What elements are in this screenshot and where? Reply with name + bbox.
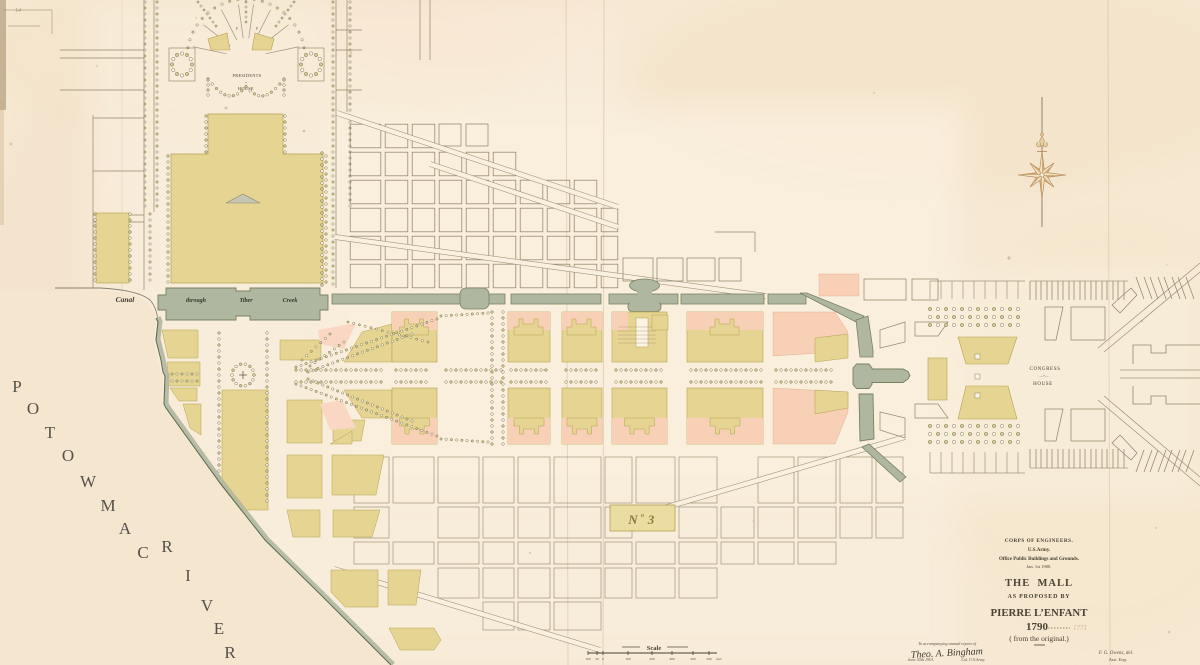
- svg-text:Jan. 1st 1900.: Jan. 1st 1900.: [1027, 564, 1052, 569]
- svg-text:100: 100: [585, 657, 591, 661]
- svg-text:U.S.Army.: U.S.Army.: [1028, 548, 1051, 553]
- svg-text:R: R: [224, 643, 236, 662]
- svg-text:E: E: [214, 619, 224, 638]
- svg-text:PRESIDENTS: PRESIDENTS: [233, 73, 262, 78]
- svg-text:500: 500: [706, 657, 712, 661]
- svg-text:THE MALL: THE MALL: [1005, 578, 1073, 589]
- svg-text:0: 0: [602, 657, 604, 661]
- svg-text:V: V: [201, 596, 214, 615]
- svg-text:Col. U.S.Army: Col. U.S.Army: [961, 657, 985, 662]
- svg-text:300: 300: [669, 657, 675, 661]
- svg-text:W: W: [80, 472, 97, 491]
- svg-text:through: through: [186, 298, 207, 304]
- svg-text:14: 14: [15, 7, 21, 14]
- svg-text:Creek: Creek: [283, 298, 298, 304]
- svg-text:O: O: [27, 399, 39, 418]
- svg-text:—+—: —+—: [1038, 374, 1049, 378]
- svg-text:200: 200: [649, 657, 655, 661]
- svg-text:feet: feet: [716, 657, 721, 661]
- svg-text:N: N: [627, 512, 638, 527]
- svg-text:CONGRESS: CONGRESS: [1030, 367, 1061, 372]
- svg-text:O: O: [62, 446, 74, 465]
- svg-text:C: C: [137, 543, 148, 562]
- svg-text:( from the original.): ( from the original.): [1009, 634, 1069, 643]
- svg-text:50: 50: [595, 657, 599, 661]
- svg-text:AS PROPOSED BY: AS PROPOSED BY: [1008, 594, 1071, 600]
- svg-text:June 30th 1901.: June 30th 1901.: [908, 657, 935, 662]
- svg-text:Canal: Canal: [116, 295, 136, 304]
- svg-text:I: I: [185, 566, 191, 585]
- svg-text:Asst. Eng.: Asst. Eng.: [1108, 657, 1127, 662]
- svg-text:400: 400: [690, 657, 696, 661]
- svg-text:100: 100: [625, 657, 631, 661]
- svg-text:P: P: [12, 377, 21, 396]
- svg-text:HOUSE: HOUSE: [1033, 382, 1053, 387]
- svg-text:T: T: [45, 423, 56, 442]
- svg-text:CORPS OF ENGINEERS.: CORPS OF ENGINEERS.: [1005, 538, 1074, 544]
- svg-text:Office Public Buildings and Gr: Office Public Buildings and Grounds.: [999, 557, 1080, 562]
- svg-text:1790: 1790: [1026, 621, 1049, 633]
- svg-text:F. G. Owens, del.: F. G. Owens, del.: [1098, 651, 1134, 656]
- svg-text:Tiber: Tiber: [239, 298, 253, 304]
- svg-text:A: A: [119, 519, 132, 538]
- svg-text:PIERRE L’ENFANT: PIERRE L’ENFANT: [991, 607, 1089, 619]
- svg-text:To accompanying annual report: To accompanying annual report of: [918, 641, 977, 646]
- svg-text:3: 3: [647, 512, 655, 527]
- svg-text:R: R: [161, 537, 173, 556]
- svg-text:M: M: [100, 496, 115, 515]
- svg-text:1771: 1771: [1073, 624, 1087, 632]
- svg-text:Scale: Scale: [647, 645, 662, 652]
